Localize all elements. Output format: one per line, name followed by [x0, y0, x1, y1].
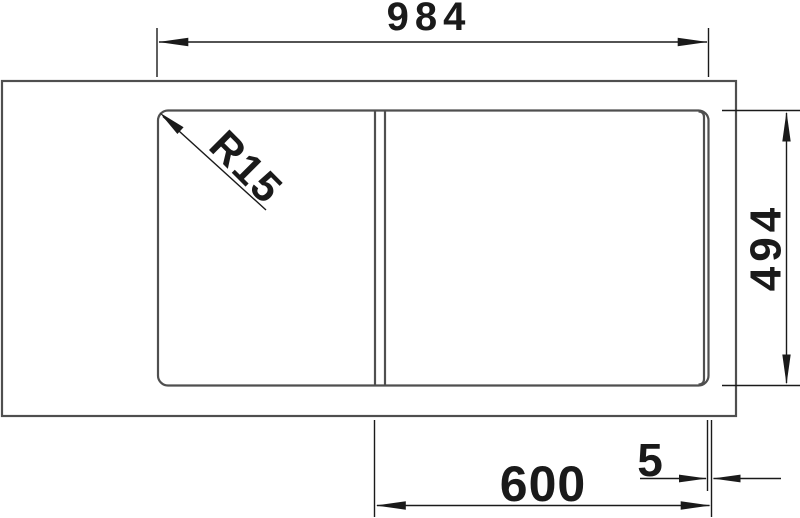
technical-drawing-page: 984 494 600 5 [0, 0, 800, 518]
sink-dimension-drawing: 984 494 600 5 [0, 0, 800, 518]
arrowhead-left-icon [376, 501, 406, 509]
dimension-corner-radius: R15 [160, 113, 293, 214]
arrowhead-corner-icon [160, 113, 184, 135]
overall-width-label: 984 [387, 0, 472, 39]
edge-offset-label: 5 [637, 434, 663, 486]
arrowhead-down-icon [782, 355, 790, 385]
arrowhead-right-icon [681, 501, 711, 509]
arrowhead-inward-right-icon [679, 475, 707, 483]
bowl-width-label: 600 [500, 456, 586, 512]
corner-radius-label: R15 [201, 121, 293, 213]
dimension-edge-offset: 5 [637, 420, 781, 491]
arrowhead-inward-left-icon [713, 475, 741, 483]
sink-outer-edge [2, 81, 736, 416]
dimension-overall-depth: 494 [722, 111, 800, 386]
overall-depth-label: 494 [742, 203, 791, 291]
arrowhead-up-icon [782, 112, 790, 142]
arrowhead-left-icon [158, 38, 188, 46]
dimension-overall-width: 984 [157, 0, 709, 77]
arrowhead-right-icon [678, 38, 708, 46]
sink-body [2, 81, 736, 416]
rim-step-line [699, 112, 705, 385]
